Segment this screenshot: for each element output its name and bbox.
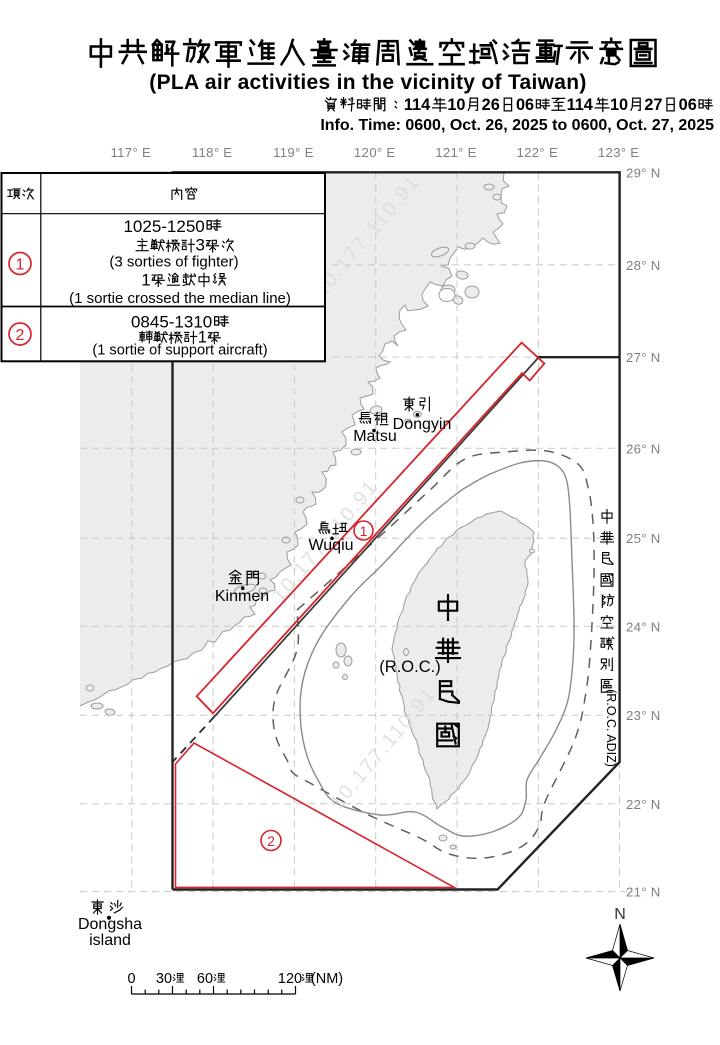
svg-text:06: 06	[516, 96, 534, 114]
svg-text:06: 06	[679, 96, 697, 114]
svg-text:117° E: 117° E	[111, 145, 152, 160]
svg-text:25° N: 25° N	[626, 531, 661, 546]
svg-text:120: 120	[278, 971, 302, 987]
svg-text:26: 26	[482, 96, 500, 114]
svg-text:Matsu: Matsu	[353, 428, 397, 445]
svg-text:27° N: 27° N	[626, 350, 661, 365]
svg-text:(3 sorties of fighter): (3 sorties of fighter)	[109, 254, 238, 271]
svg-text:118° E: 118° E	[192, 145, 233, 160]
svg-text:24° N: 24° N	[626, 619, 661, 634]
svg-text:(R.O.C.): (R.O.C.)	[379, 658, 440, 676]
svg-text:27: 27	[644, 96, 662, 114]
svg-text:21° N: 21° N	[626, 885, 661, 900]
svg-text:123° E: 123° E	[598, 145, 640, 160]
svg-text:60: 60	[197, 971, 213, 987]
svg-text:(1 sortie of support aircraft): (1 sortie of support aircraft)	[92, 343, 267, 359]
svg-text:23° N: 23° N	[626, 708, 661, 723]
svg-text:Kinmen: Kinmen	[215, 588, 269, 605]
svg-text:(PLA air activities in the vic: (PLA air activities in the vicinity of T…	[149, 71, 586, 94]
svg-text:2: 2	[16, 327, 25, 344]
svg-text:22° N: 22° N	[626, 797, 661, 812]
svg-text:29° N: 29° N	[626, 165, 661, 180]
svg-text:1: 1	[141, 271, 150, 290]
svg-text:30: 30	[156, 971, 172, 987]
svg-text:114: 114	[404, 96, 430, 114]
svg-text:10: 10	[610, 96, 628, 114]
svg-text:Info. Time: 0600, Oct. 26, 202: Info. Time: 0600, Oct. 26, 2025 to 0600,…	[320, 117, 714, 134]
svg-text:114: 114	[567, 96, 593, 114]
svg-text:121° E: 121° E	[435, 145, 477, 160]
svg-text:(1 sortie crossed the median l: (1 sortie crossed the median line)	[69, 290, 291, 307]
svg-text:island: island	[89, 932, 131, 949]
svg-text:(R.O.C. ADIZ): (R.O.C. ADIZ)	[604, 689, 618, 767]
svg-text:2: 2	[267, 833, 275, 849]
svg-text:28° N: 28° N	[626, 258, 661, 273]
svg-text:1: 1	[360, 523, 368, 539]
svg-text:3: 3	[195, 236, 204, 255]
svg-text:Dongyin: Dongyin	[393, 416, 452, 433]
svg-text:1: 1	[16, 257, 25, 274]
svg-text:120° E: 120° E	[354, 145, 396, 160]
svg-text:10: 10	[447, 96, 465, 114]
svg-text:(NM): (NM)	[311, 971, 343, 987]
svg-text:0: 0	[127, 971, 135, 987]
svg-text:Wuqiu: Wuqiu	[308, 537, 353, 554]
svg-text:1025-1250: 1025-1250	[123, 217, 204, 236]
svg-text:26° N: 26° N	[626, 441, 661, 456]
svg-text:119° E: 119° E	[273, 145, 314, 160]
svg-text:N: N	[614, 906, 626, 923]
svg-text:122° E: 122° E	[517, 145, 559, 160]
svg-text:Dongsha: Dongsha	[78, 916, 142, 933]
